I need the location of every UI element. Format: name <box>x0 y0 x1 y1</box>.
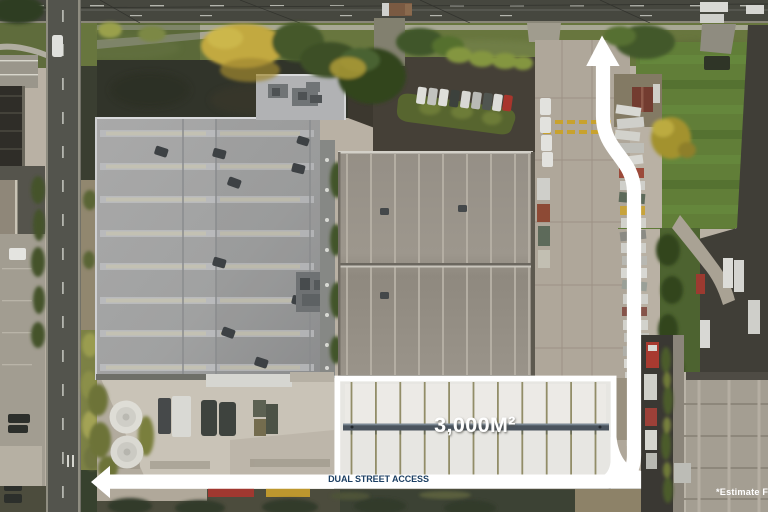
svg-text:*Estimate Floor: *Estimate Floor <box>716 487 768 497</box>
svg-text:DUAL STREET ACCESS: DUAL STREET ACCESS <box>328 474 429 484</box>
svg-text:3,000M²: 3,000M² <box>434 413 516 437</box>
